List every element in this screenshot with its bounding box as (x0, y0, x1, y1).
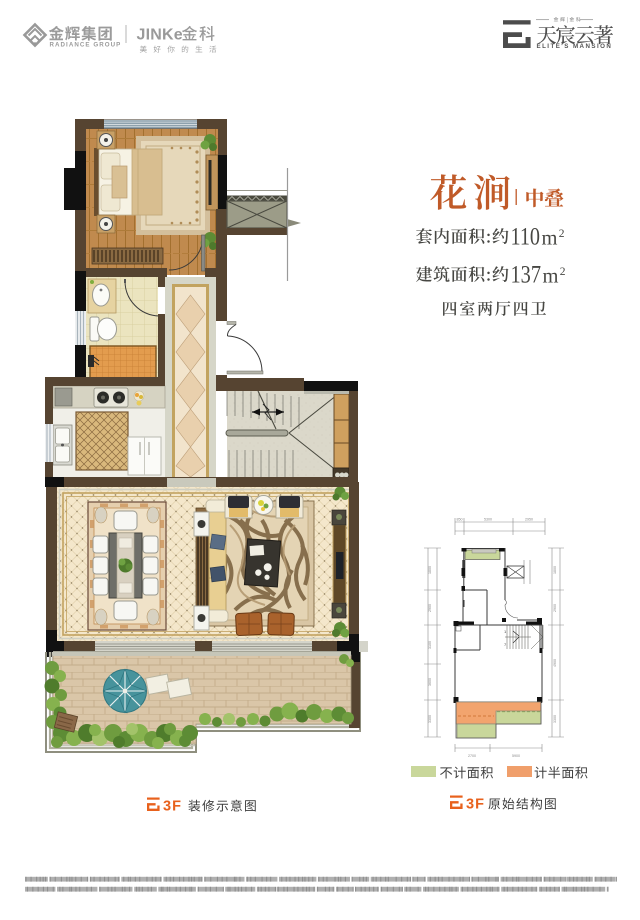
svg-text:2900: 2900 (553, 604, 557, 612)
svg-text:3600: 3600 (428, 678, 432, 686)
svg-text:m: m (542, 228, 558, 250)
svg-text:2: 2 (560, 266, 566, 278)
svg-text:4900: 4900 (553, 659, 557, 667)
svg-text:5900: 5900 (512, 754, 520, 758)
svg-text:2700: 2700 (468, 754, 476, 758)
svg-text:850: 850 (457, 518, 463, 522)
svg-text:3F: 3F (163, 799, 182, 815)
svg-text:JINKe: JINKe (137, 27, 183, 44)
svg-text:1800: 1800 (428, 566, 432, 574)
svg-text:3F: 3F (466, 797, 485, 813)
svg-text:m: m (543, 266, 559, 288)
svg-text:ELITE'S MANSION: ELITE'S MANSION (537, 43, 613, 50)
svg-text:137: 137 (511, 262, 542, 289)
svg-text:3300: 3300 (553, 715, 557, 723)
svg-text:2950: 2950 (525, 518, 533, 522)
svg-text:5300: 5300 (484, 518, 492, 522)
svg-text:2: 2 (559, 228, 565, 240)
svg-text:1800: 1800 (553, 566, 557, 574)
svg-text:2900: 2900 (428, 604, 432, 612)
svg-text:RADIANCE GROUP: RADIANCE GROUP (50, 42, 122, 49)
svg-text:110: 110 (511, 224, 541, 251)
svg-text:3100: 3100 (428, 641, 432, 649)
svg-text:3300: 3300 (428, 715, 432, 723)
